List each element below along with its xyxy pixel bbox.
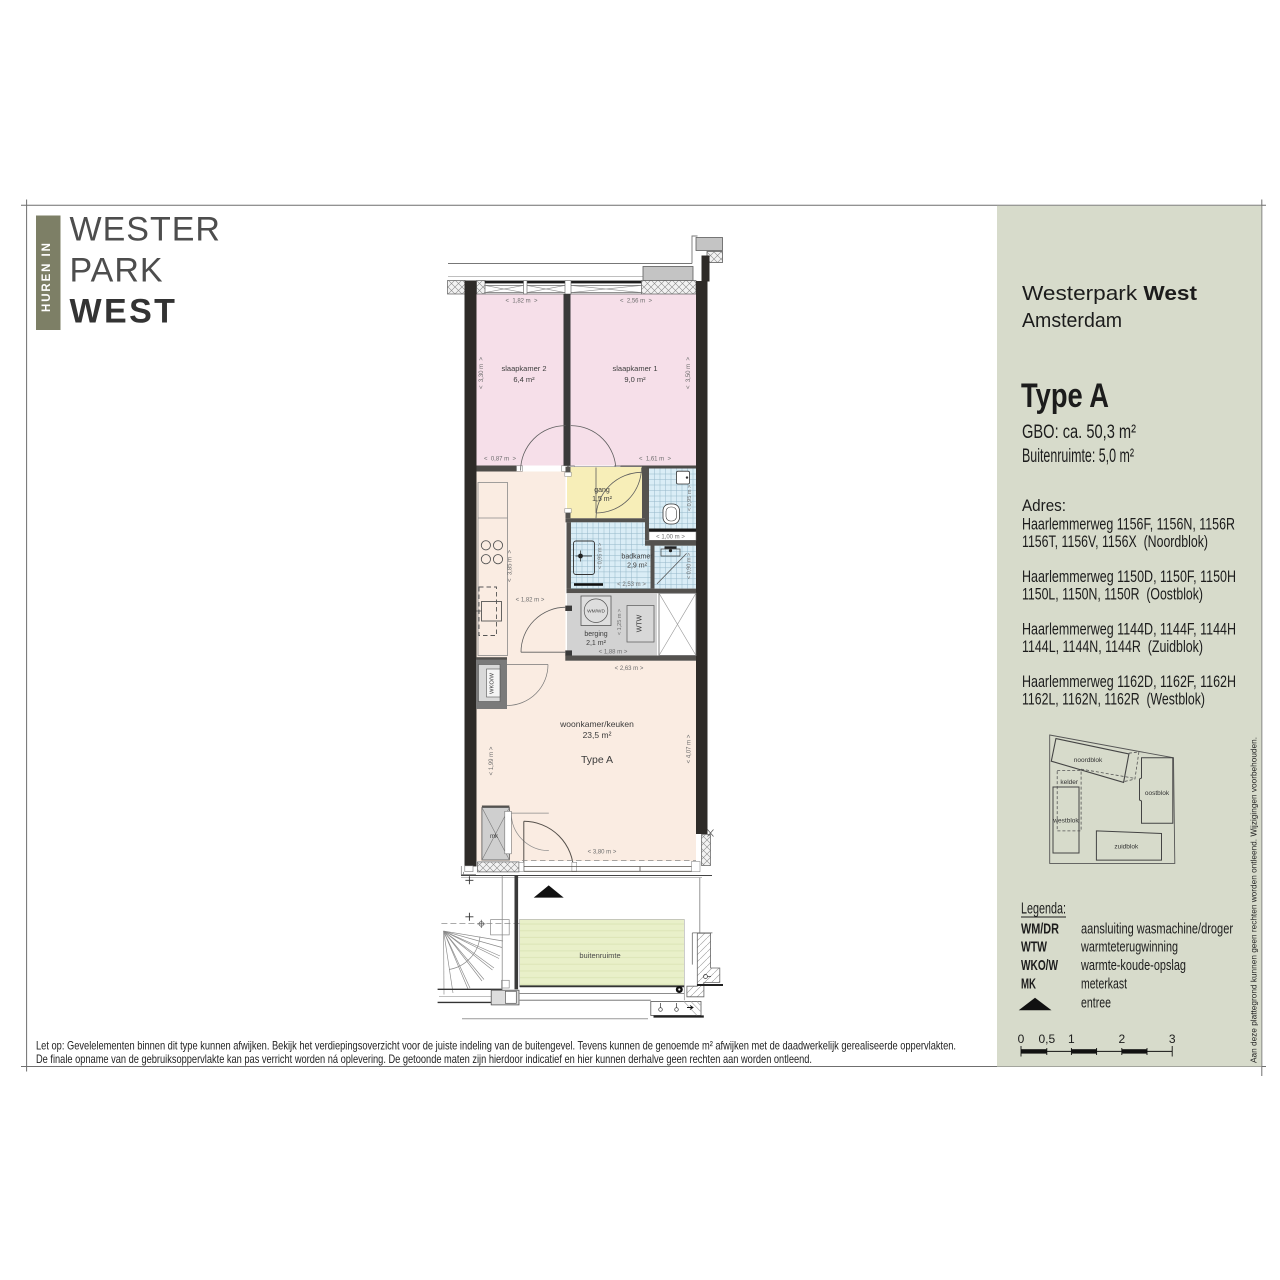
svg-text:< 1,25 m >: < 1,25 m > — [617, 609, 623, 635]
svg-text:HUREN IN: HUREN IN — [41, 241, 53, 312]
svg-text:westblok: westblok — [1052, 818, 1079, 825]
svg-text:WTW: WTW — [637, 614, 644, 632]
svg-text:De finale opname van de gebrui: De finale opname van de gebruiksoppervla… — [36, 1052, 812, 1066]
svg-text:WESTER: WESTER — [70, 211, 221, 249]
svg-text:mk: mk — [490, 834, 499, 840]
svg-text:6,4 m²: 6,4 m² — [513, 375, 535, 384]
svg-text:1150L, 1150N, 1150R (Oostblok: 1150L, 1150N, 1150R (Oostblok) — [1022, 586, 1203, 604]
svg-text:0: 0 — [1018, 1032, 1025, 1046]
svg-text:< 2,53 m >: < 2,53 m > — [617, 582, 646, 588]
svg-text:< 3,30 m >: < 3,30 m > — [479, 357, 485, 390]
svg-text:9,0 m²: 9,0 m² — [624, 375, 646, 384]
svg-text:23,5 m²: 23,5 m² — [583, 730, 612, 740]
svg-text:< 0,87 m >: < 0,87 m > — [484, 457, 517, 463]
svg-text:slaapkamer 1: slaapkamer 1 — [612, 364, 657, 373]
svg-text:< 0,95 m >: < 0,95 m > — [687, 485, 693, 511]
svg-text:< 3,80 m >: < 3,80 m > — [588, 850, 617, 856]
svg-text:Let op: Gevelelementen binnen: Let op: Gevelelementen binnen dit type k… — [36, 1039, 956, 1053]
svg-text:WM/WD: WM/WD — [587, 609, 605, 615]
svg-text:WTW: WTW — [1021, 939, 1048, 956]
svg-text:2: 2 — [1118, 1032, 1125, 1046]
svg-text:slaapkamer 2: slaapkamer 2 — [501, 364, 546, 373]
svg-text:< 3,85 m >: < 3,85 m > — [508, 550, 514, 583]
svg-text:1144L, 1144N, 1144R (Zuidblok: 1144L, 1144N, 1144R (Zuidblok) — [1022, 638, 1203, 656]
svg-text:kelder: kelder — [1060, 779, 1079, 786]
svg-text:2,1 m²: 2,1 m² — [586, 640, 607, 647]
svg-text:1162L, 1162N, 1162R (Westblok: 1162L, 1162N, 1162R (Westblok) — [1022, 691, 1205, 709]
svg-text:berging: berging — [584, 631, 607, 638]
svg-text:WKO/W: WKO/W — [1021, 957, 1059, 974]
svg-text:warmte-koude-opslag: warmte-koude-opslag — [1080, 957, 1186, 974]
svg-text:0,5: 0,5 — [1038, 1032, 1055, 1046]
svg-text:< 2,56 m >: < 2,56 m > — [620, 299, 653, 305]
svg-text:< 1,00 m >: < 1,00 m > — [656, 534, 685, 540]
svg-text:< 1,82 m >: < 1,82 m > — [505, 299, 538, 305]
svg-text:Haarlemmerweg 1150D, 1150F, 11: Haarlemmerweg 1150D, 1150F, 1150H — [1022, 568, 1236, 586]
svg-text:1: 1 — [1068, 1032, 1075, 1046]
svg-text:Haarlemmerweg 1144D, 1144F, 11: Haarlemmerweg 1144D, 1144F, 1144H — [1022, 621, 1236, 639]
svg-text:oostblok: oostblok — [1145, 790, 1170, 797]
svg-text:badkamer: badkamer — [621, 554, 653, 561]
svg-text:meterkast: meterkast — [1081, 976, 1128, 993]
svg-text:Type A: Type A — [1021, 377, 1109, 415]
svg-text:aansluiting wasmachine/droger: aansluiting wasmachine/droger — [1081, 921, 1233, 938]
svg-text:warmteterugwinning: warmteterugwinning — [1080, 939, 1178, 956]
svg-text:2,9 m²: 2,9 m² — [627, 563, 648, 570]
svg-text:WM/DR: WM/DR — [1021, 921, 1059, 938]
svg-text:Aan deze plattegrond kunnen ge: Aan deze plattegrond kunnen geen rechten… — [1250, 737, 1259, 1063]
svg-text:Legenda:: Legenda: — [1021, 901, 1066, 918]
svg-text:MK: MK — [1021, 976, 1036, 993]
svg-text:< 0,95 m >: < 0,95 m > — [598, 543, 604, 569]
svg-text:zuidblok: zuidblok — [1114, 844, 1139, 851]
svg-text:Haarlemmerweg 1162D, 1162F, 11: Haarlemmerweg 1162D, 1162F, 1162H — [1022, 673, 1236, 691]
svg-text:PARK: PARK — [70, 252, 164, 290]
svg-text:Haarlemmerweg 1156F, 1156N, 11: Haarlemmerweg 1156F, 1156N, 1156R — [1022, 516, 1235, 534]
svg-text:< 2,63 m >: < 2,63 m > — [615, 666, 644, 672]
svg-text:buitenruimte: buitenruimte — [579, 951, 620, 960]
svg-text:< 3,50 m >: < 3,50 m > — [686, 357, 692, 390]
svg-text:woonkamer/keuken: woonkamer/keuken — [559, 719, 634, 729]
svg-text:< 1,61 m >: < 1,61 m > — [639, 457, 672, 463]
svg-text:entree: entree — [1081, 995, 1111, 1012]
svg-text:GBO: ca. 50,3 m²: GBO: ca. 50,3 m² — [1022, 422, 1136, 443]
svg-text:3: 3 — [1169, 1032, 1176, 1046]
svg-text:< 1,82 m >: < 1,82 m > — [516, 598, 545, 604]
svg-text:1156T, 1156V, 1156X (Noordblo: 1156T, 1156V, 1156X (Noordblok) — [1022, 533, 1208, 551]
svg-text:WKO/W: WKO/W — [490, 673, 496, 694]
svg-text:noordblok: noordblok — [1074, 757, 1103, 764]
svg-text:< 1,99 m >: < 1,99 m > — [489, 746, 495, 775]
svg-text:Type A: Type A — [581, 754, 613, 766]
svg-text:Adres:: Adres: — [1022, 497, 1066, 515]
svg-text:Buitenruimte: 5,0 m²: Buitenruimte: 5,0 m² — [1022, 446, 1134, 467]
svg-text:1,5 m²: 1,5 m² — [592, 496, 613, 503]
svg-text:Westerpark West: Westerpark West — [1022, 282, 1197, 305]
svg-text:< 0,90 m >: < 0,90 m > — [687, 553, 693, 579]
svg-text:Amsterdam: Amsterdam — [1022, 309, 1122, 332]
svg-text:< 4,07 m >: < 4,07 m > — [687, 734, 693, 763]
svg-text:WEST: WEST — [70, 293, 178, 331]
svg-text:< 1,88 m >: < 1,88 m > — [599, 650, 628, 656]
svg-text:gang: gang — [594, 487, 610, 494]
